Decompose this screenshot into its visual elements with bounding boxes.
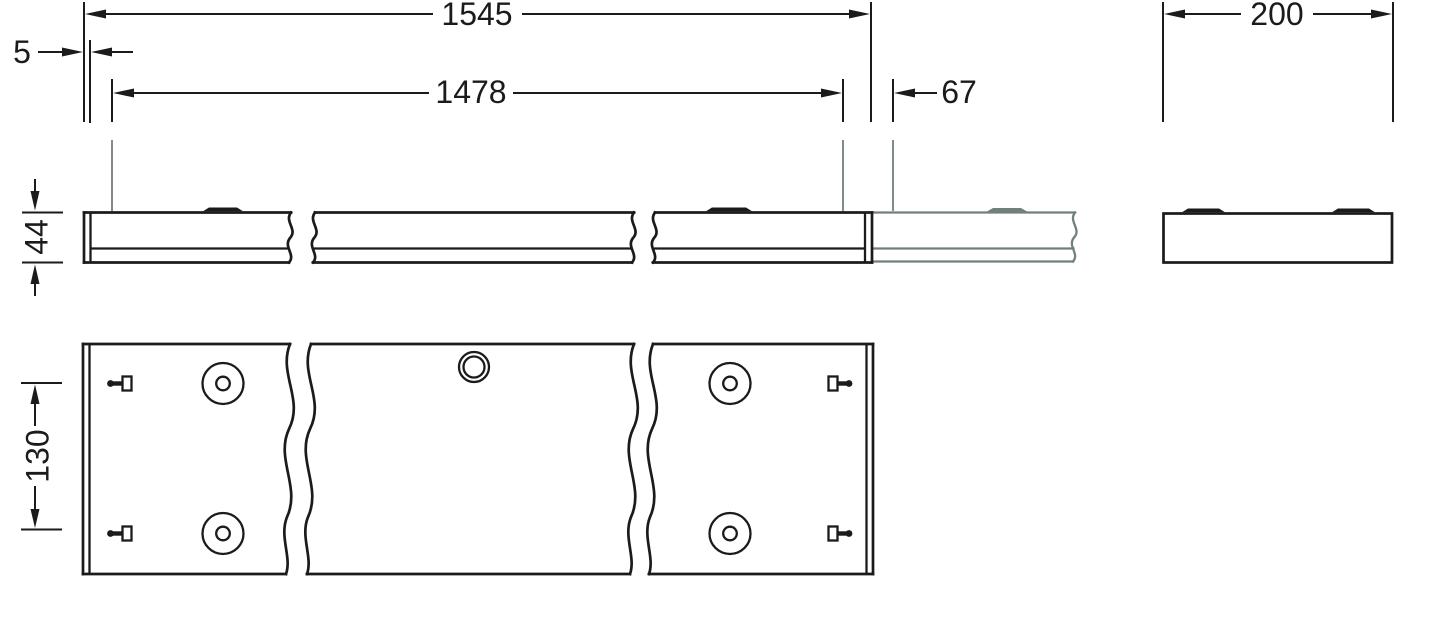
keyhole-head [123,377,132,391]
arrowhead-left [85,10,106,19]
side-view [84,208,872,263]
hole-inner-ring [216,377,230,391]
housing-segment [312,213,636,263]
arrowhead-right [62,48,83,57]
keyhole-dot [846,530,853,537]
hole-inner-ring [216,527,230,541]
arrowhead-right [849,10,870,19]
hole-outer-ring [710,363,751,404]
housing-segment [652,208,872,263]
dimension-value: 1478 [435,74,506,110]
dimension-value: 5 [13,34,31,70]
suspension-wires [112,140,893,211]
keyhole-slot [829,377,853,391]
arrowhead-left [1164,10,1185,19]
side-view-continuation [873,208,1077,262]
dimension-suspension-spacing: 1478 [112,74,843,122]
connector-cover [1332,209,1375,213]
arrowhead-right [1371,10,1392,19]
mounting-hole [710,513,751,554]
keyhole-slot [107,527,131,541]
end-view-housing [1164,214,1393,263]
housing-segment [84,208,293,263]
mounting-hole [710,363,751,404]
keyhole-stem [112,531,123,535]
dimension-value: 200 [1250,0,1303,32]
bottom-view [83,344,873,574]
connector-cover [987,208,1027,212]
hole-inner-ring [723,527,737,541]
dimension-value: 130 [20,429,56,482]
break-line [652,213,657,263]
keyhole-stem [112,381,123,385]
keyhole-head [123,527,132,541]
mounting-hole [203,363,244,404]
break-line [628,344,637,574]
mounting-hole [203,513,244,554]
arrowhead-up [31,385,40,405]
technical-drawing: 1545 5 1478 67 200 [0,0,1440,643]
break-line [647,344,656,574]
dimension-suspension-end-offset: 67 [893,74,977,122]
break-line [305,344,314,574]
end-view [1164,209,1393,263]
dimension-end-inset: 5 [13,34,133,123]
hole-inner-ring [723,377,737,391]
hole-outer-ring [710,513,751,554]
arrowhead-left [113,89,134,98]
plate-panel [305,344,637,574]
dimension-housing-width: 200 [1163,0,1393,122]
break-line [631,213,636,263]
plate-panel [647,344,873,574]
dimension-value: 1545 [441,0,512,32]
dimension-value: 67 [941,74,977,110]
cable-entry-hole [459,352,489,382]
arrowhead-down [31,191,40,211]
keyhole-slot [829,527,853,541]
hole-inner-ring [464,357,485,378]
plate-panel [83,344,294,574]
drawing-canvas: 1545 5 1478 67 200 [0,0,1440,643]
keyhole-head [829,527,838,541]
connector-cover [1182,209,1225,213]
hole-outer-ring [203,513,244,554]
dimension-mounting-row-spacing: 130 [20,383,63,530]
dimension-value: 44 [19,219,55,255]
keyhole-dot [846,380,853,387]
dimension-housing-height: 44 [19,179,64,296]
arrowhead-left [91,48,112,57]
hole-outer-ring [203,363,244,404]
connector-cover [203,208,243,212]
keyhole-slot [107,377,131,391]
connector-cover [706,208,752,212]
arrowhead-left [894,89,915,98]
break-line [312,213,317,263]
keyhole-head [829,377,838,391]
arrowhead-right [821,89,842,98]
break-line [1072,213,1077,262]
break-line [284,344,293,574]
arrowhead-up [31,265,40,285]
break-line [288,213,293,263]
arrowhead-down [31,509,40,528]
